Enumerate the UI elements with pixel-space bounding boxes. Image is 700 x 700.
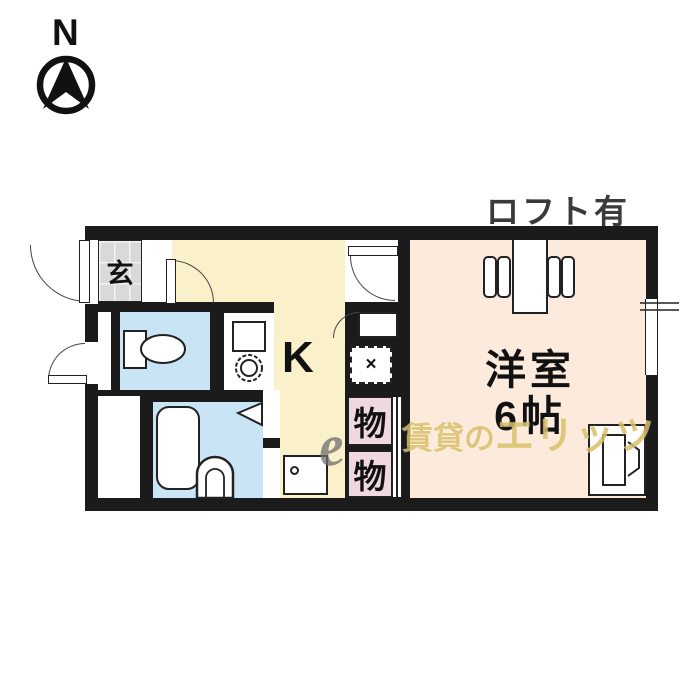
window-tick-marks bbox=[640, 303, 679, 310]
toilet-icon bbox=[124, 331, 185, 368]
watermark-text-small: 賃貸の bbox=[402, 421, 495, 456]
fixtures-overlay bbox=[0, 0, 700, 700]
burner-icon bbox=[236, 355, 262, 381]
folding-door-icon bbox=[238, 403, 262, 425]
watermark-text: 賃貸のエリッツ bbox=[402, 405, 655, 461]
washbasin-icon bbox=[197, 457, 233, 498]
watermark-text-big: エリッツ bbox=[495, 415, 655, 458]
